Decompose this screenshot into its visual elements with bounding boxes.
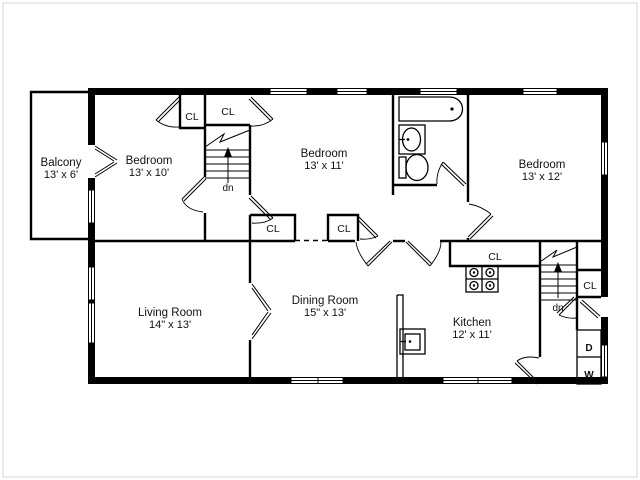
- floor-plan-drawing: Balcony 13' x 6' Bedroom 13' x 10' Bedro…: [0, 0, 640, 480]
- sink-drain: [407, 138, 410, 141]
- room-dims: 13' x 12': [522, 171, 562, 183]
- room-label: Balcony: [41, 157, 82, 169]
- window: [523, 88, 557, 95]
- room-label: Bedroom: [519, 159, 566, 171]
- window: [443, 377, 478, 384]
- closet-label: CL: [337, 223, 351, 235]
- window: [270, 88, 307, 95]
- closet-label: CL: [185, 111, 199, 123]
- room-label: Bedroom: [301, 148, 348, 160]
- window: [88, 303, 95, 343]
- stove: [466, 266, 498, 292]
- room-bedroom-left: Bedroom 13' x 10': [126, 155, 173, 179]
- window: [420, 88, 457, 95]
- room-dims: 13' x 11': [304, 160, 343, 172]
- room-label: Kitchen: [453, 317, 491, 329]
- window: [601, 345, 608, 377]
- washer-label: W: [584, 370, 594, 381]
- stairs-down-label: dn: [552, 303, 563, 314]
- window: [291, 377, 318, 384]
- closet-label: CL: [266, 223, 280, 235]
- room-bedroom-middle: Bedroom 13' x 11': [301, 148, 348, 172]
- room-kitchen: Kitchen 12' x 11': [452, 317, 491, 341]
- room-dims: 12' x 11': [452, 329, 491, 341]
- room-label: Dining Room: [292, 295, 358, 307]
- tub-drain: [450, 107, 453, 110]
- back-door-opening: [601, 297, 608, 317]
- room-dims: 13' x 6': [44, 169, 78, 181]
- balcony-door-opening: [88, 145, 95, 178]
- room-dims: 15" x 13': [304, 307, 346, 319]
- room-label: Living Room: [138, 307, 202, 319]
- stairs-down-label: dn: [222, 183, 233, 194]
- room-dims: 13' x 10': [129, 167, 169, 179]
- room-bedroom-right: Bedroom 13' x 12': [519, 159, 566, 183]
- floor-plan-canvas: Balcony 13' x 6' Bedroom 13' x 10' Bedro…: [0, 0, 640, 480]
- room-dims: 14" x 13': [149, 319, 191, 331]
- closet-label: CL: [583, 280, 597, 292]
- window: [318, 377, 343, 384]
- window: [478, 377, 512, 384]
- room-label: Bedroom: [126, 155, 173, 167]
- window: [337, 88, 367, 95]
- room-balcony: Balcony 13' x 6': [41, 157, 82, 181]
- window: [601, 142, 608, 175]
- closet-label: CL: [221, 106, 235, 118]
- closet-label: CL: [488, 251, 502, 263]
- window: [88, 267, 95, 300]
- dryer-label: D: [585, 343, 592, 354]
- window: [88, 190, 95, 223]
